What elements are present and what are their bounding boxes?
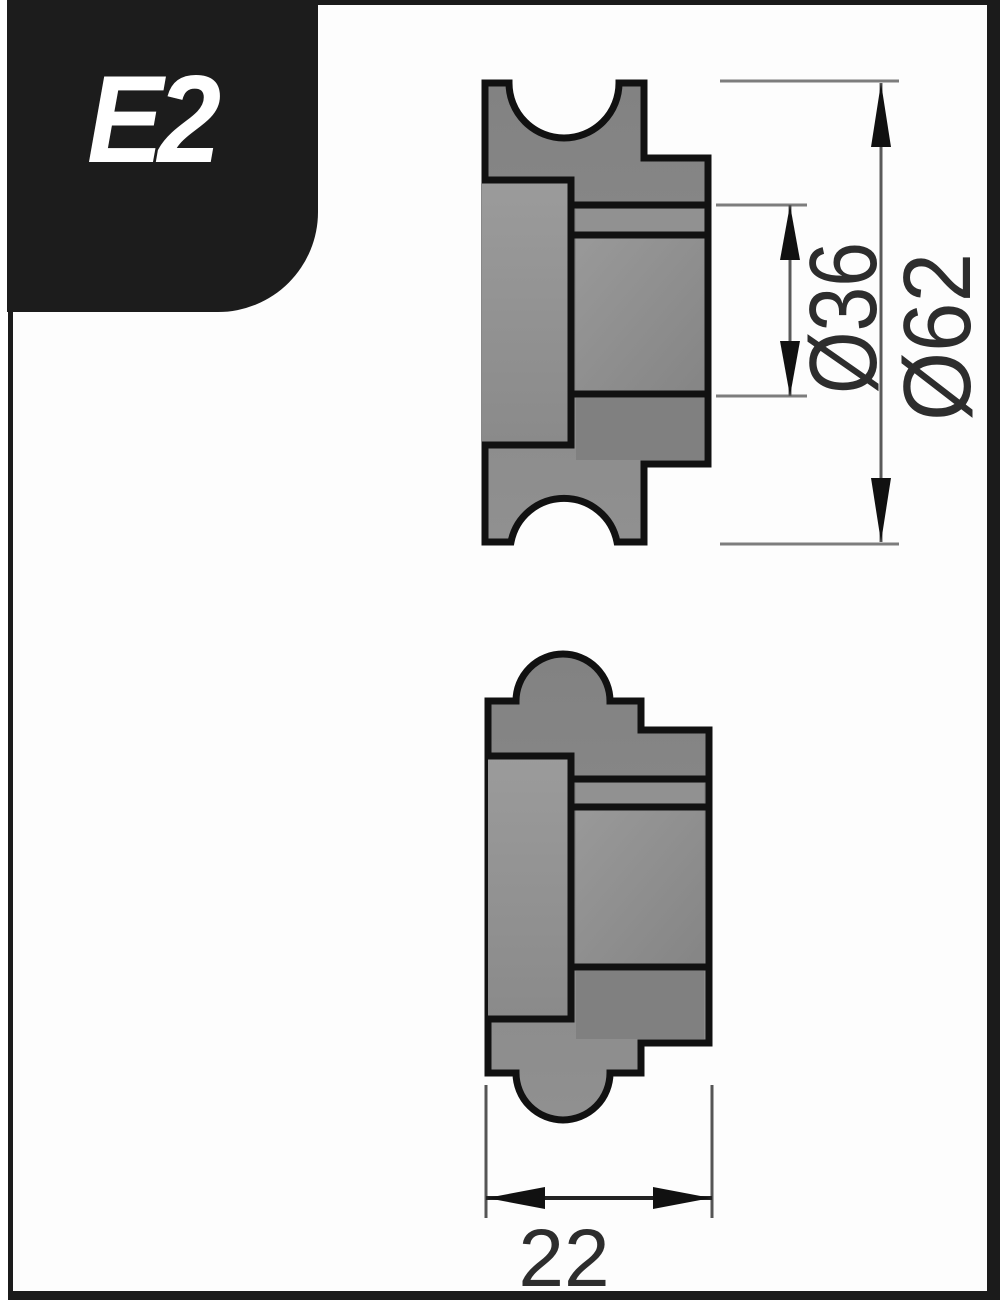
roller-bottom-shade-lower bbox=[576, 971, 704, 1039]
roller-bottom-figure bbox=[488, 654, 709, 1120]
roller-top-figure bbox=[482, 83, 708, 542]
arrowhead-width-left bbox=[487, 1187, 545, 1209]
dimension-roller-width: 22 bbox=[486, 1085, 712, 1300]
roller-top-hub bbox=[482, 180, 571, 445]
roller-top-shade-upper-band bbox=[576, 209, 704, 232]
roller-bottom-shade-mid bbox=[576, 810, 704, 964]
type-badge-label: E2 bbox=[87, 58, 215, 182]
catalog-panel: E2 bbox=[0, 0, 1000, 1300]
roller-bottom-hub bbox=[488, 756, 571, 1019]
roller-top-shade-mid bbox=[576, 238, 704, 391]
dimension-label-width: 22 bbox=[518, 1213, 609, 1300]
type-badge: E2 bbox=[7, 0, 318, 312]
roller-top-shade-lower bbox=[576, 398, 704, 460]
dimension-label-outer: Ø62 bbox=[884, 253, 991, 421]
arrowhead-width-right bbox=[653, 1187, 711, 1209]
arrowhead-outer-down bbox=[871, 478, 891, 542]
roller-bottom-shade-upper-band bbox=[576, 783, 704, 803]
arrowhead-outer-up bbox=[871, 83, 891, 147]
dimension-bore-diameter: Ø36 bbox=[716, 205, 897, 396]
